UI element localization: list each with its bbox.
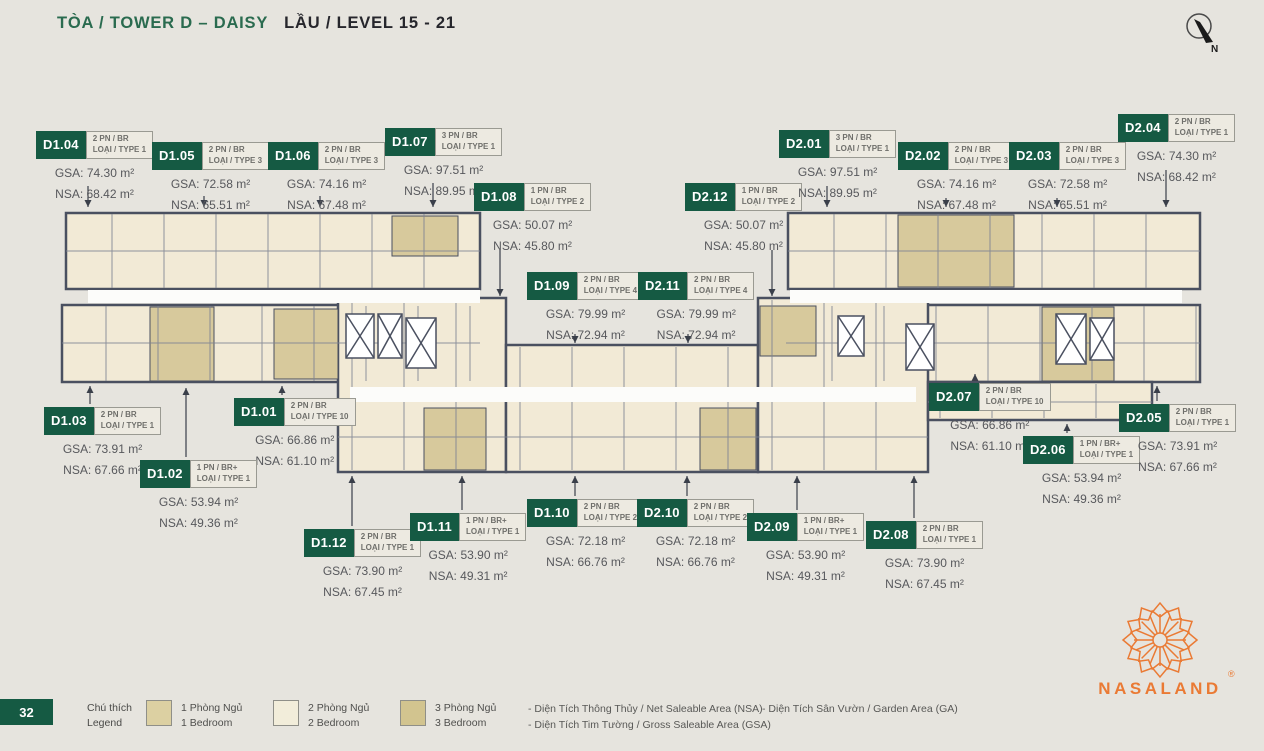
unit-type-label: 3 PN / BRLOẠI / TYPE 1 — [435, 128, 502, 156]
unit-id-label: D1.01 — [234, 398, 284, 426]
unit-card-head: D1.073 PN / BRLOẠI / TYPE 1 — [385, 128, 502, 156]
legend-item: 3 Phòng Ngủ3 Bedroom — [400, 700, 496, 731]
unit-areas: GSA: 73.91 m²NSA: 67.66 m² — [1138, 436, 1217, 479]
unit-card-d1-02: D1.021 PN / BR+LOẠI / TYPE 1GSA: 53.94 m… — [140, 460, 257, 535]
unit-gsa-value: GSA: 73.91 m² — [63, 439, 142, 461]
unit-card-head: D1.012 PN / BRLOẠI / TYPE 10 — [234, 398, 356, 426]
unit-gsa-value: GSA: 66.86 m² — [950, 415, 1029, 437]
unit-card-head: D2.112 PN / BRLOẠI / TYPE 4 — [638, 272, 754, 300]
unit-id-label: D2.07 — [929, 383, 979, 411]
unit-type-label: 2 PN / BRLOẠI / TYPE 3 — [948, 142, 1015, 170]
unit-bedroom-count: 1 PN / BR+ — [466, 516, 519, 527]
unit-areas: GSA: 79.99 m²NSA: 72.94 m² — [656, 304, 735, 347]
legend-color-swatch — [273, 700, 299, 726]
unit-type-label: 2 PN / BRLOẠI / TYPE 3 — [1059, 142, 1126, 170]
unit-bedroom-count: 2 PN / BR — [93, 134, 146, 145]
unit-card-head: D1.081 PN / BRLOẠI / TYPE 2 — [474, 183, 591, 211]
unit-areas: GSA: 53.90 m²NSA: 49.31 m² — [428, 545, 507, 588]
unit-id-label: D2.03 — [1009, 142, 1059, 170]
unit-nsa-value: NSA: 49.31 m² — [428, 566, 507, 588]
unit-type-label: 2 PN / BRLOẠI / TYPE 4 — [577, 272, 644, 300]
unit-gsa-value: GSA: 72.18 m² — [546, 531, 625, 553]
legend-note: - Diện Tích Thông Thủy / Net Saleable Ar… — [528, 701, 771, 717]
unit-type-label: 2 PN / BRLOẠI / TYPE 3 — [202, 142, 269, 170]
unit-gsa-value: GSA: 74.16 m² — [917, 174, 996, 196]
unit-areas: GSA: 72.58 m²NSA: 65.51 m² — [171, 174, 250, 217]
unit-gsa-value: GSA: 53.90 m² — [766, 545, 845, 567]
unit-gsa-value: GSA: 50.07 m² — [493, 215, 572, 237]
unit-id-label: D1.02 — [140, 460, 190, 488]
unit-card-d2-08: D2.082 PN / BRLOẠI / TYPE 1GSA: 73.90 m²… — [866, 521, 983, 596]
unit-gsa-value: GSA: 72.18 m² — [656, 531, 735, 553]
unit-nsa-value: NSA: 49.36 m² — [1042, 489, 1121, 511]
unit-areas: GSA: 97.51 m²NSA: 89.95 m² — [404, 160, 483, 203]
unit-type-number: LOẠI / TYPE 1 — [804, 527, 857, 538]
legend-label: 2 Phòng Ngủ2 Bedroom — [308, 700, 369, 731]
unit-bedroom-count: 1 PN / BR+ — [804, 516, 857, 527]
unit-bedroom-count: 2 PN / BR — [694, 502, 747, 513]
legend-title-en: Legend — [87, 716, 132, 731]
unit-gsa-value: GSA: 72.58 m² — [1028, 174, 1107, 196]
unit-type-label: 2 PN / BRLOẠI / TYPE 1 — [86, 131, 153, 159]
unit-bedroom-count: 2 PN / BR — [209, 145, 262, 156]
unit-id-label: D1.09 — [527, 272, 577, 300]
unit-bedroom-count: 3 PN / BR — [442, 131, 495, 142]
unit-gsa-value: GSA: 73.91 m² — [1138, 436, 1217, 458]
unit-card-d2-01: D2.013 PN / BRLOẠI / TYPE 1GSA: 97.51 m²… — [779, 130, 896, 205]
unit-nsa-value: NSA: 68.42 m² — [55, 184, 134, 206]
unit-bedroom-count: 2 PN / BR — [955, 145, 1008, 156]
unit-nsa-value: NSA: 67.66 m² — [63, 460, 142, 482]
unit-card-d2-02: D2.022 PN / BRLOẠI / TYPE 3GSA: 74.16 m²… — [898, 142, 1015, 217]
unit-id-label: D1.04 — [36, 131, 86, 159]
unit-bedroom-count: 2 PN / BR — [694, 275, 747, 286]
unit-type-number: LOẠI / TYPE 4 — [584, 286, 637, 297]
unit-card-head: D1.021 PN / BR+LOẠI / TYPE 1 — [140, 460, 257, 488]
unit-type-number: LOẠI / TYPE 2 — [584, 513, 637, 524]
unit-card-d1-11: D1.111 PN / BR+LOẠI / TYPE 1GSA: 53.90 m… — [410, 513, 526, 588]
unit-id-label: D1.10 — [527, 499, 577, 527]
legend-label: 3 Phòng Ngủ3 Bedroom — [435, 700, 496, 731]
unit-nsa-value: NSA: 68.42 m² — [1137, 167, 1216, 189]
unit-gsa-value: GSA: 66.86 m² — [255, 430, 334, 452]
unit-card-d1-09: D1.092 PN / BRLOẠI / TYPE 4GSA: 79.99 m²… — [527, 272, 644, 347]
unit-card-head: D2.102 PN / BRLOẠI / TYPE 2 — [637, 499, 754, 527]
unit-id-label: D2.12 — [685, 183, 735, 211]
unit-type-number: LOẠI / TYPE 1 — [466, 527, 519, 538]
unit-type-label: 1 PN / BR+LOẠI / TYPE 1 — [459, 513, 526, 541]
unit-gsa-value: GSA: 73.90 m² — [323, 561, 402, 583]
unit-card-head: D2.072 PN / BRLOẠI / TYPE 10 — [929, 383, 1051, 411]
unit-card-head: D2.042 PN / BRLOẠI / TYPE 1 — [1118, 114, 1235, 142]
unit-nsa-value: NSA: 45.80 m² — [493, 236, 572, 258]
unit-id-label: D2.05 — [1119, 404, 1169, 432]
unit-card-head: D1.052 PN / BRLOẠI / TYPE 3 — [152, 142, 269, 170]
unit-bedroom-count: 2 PN / BR — [291, 401, 349, 412]
unit-nsa-value: NSA: 67.48 m² — [917, 195, 996, 217]
unit-type-number: LOẠI / TYPE 1 — [101, 421, 154, 432]
unit-id-label: D1.11 — [410, 513, 459, 541]
unit-type-label: 2 PN / BRLOẠI / TYPE 10 — [979, 383, 1051, 411]
unit-gsa-value: GSA: 50.07 m² — [704, 215, 783, 237]
unit-id-label: D2.10 — [637, 499, 687, 527]
unit-type-label: 2 PN / BRLOẠI / TYPE 10 — [284, 398, 356, 426]
unit-areas: GSA: 72.18 m²NSA: 66.76 m² — [656, 531, 735, 574]
unit-areas: GSA: 79.99 m²NSA: 72.94 m² — [546, 304, 625, 347]
unit-id-label: D2.01 — [779, 130, 829, 158]
legend-note: - Diện Tích Tim Tường / Gross Saleable A… — [528, 717, 771, 733]
unit-gsa-value: GSA: 53.90 m² — [428, 545, 507, 567]
unit-id-label: D1.12 — [304, 529, 354, 557]
unit-type-label: 2 PN / BRLOẠI / TYPE 1 — [1169, 404, 1236, 432]
unit-card-d2-05: D2.052 PN / BRLOẠI / TYPE 1GSA: 73.91 m²… — [1119, 404, 1236, 479]
legend-item: 2 Phòng Ngủ2 Bedroom — [273, 700, 369, 731]
unit-type-number: LOẠI / TYPE 1 — [361, 543, 414, 554]
unit-type-label: 2 PN / BRLOẠI / TYPE 3 — [318, 142, 385, 170]
unit-gsa-value: GSA: 97.51 m² — [798, 162, 877, 184]
unit-id-label: D2.11 — [638, 272, 687, 300]
unit-bedroom-count: 3 PN / BR — [836, 133, 889, 144]
unit-type-number: LOẠI / TYPE 1 — [1176, 418, 1229, 429]
unit-card-d2-10: D2.102 PN / BRLOẠI / TYPE 2GSA: 72.18 m²… — [637, 499, 754, 574]
unit-type-number: LOẠI / TYPE 3 — [325, 156, 378, 167]
unit-bedroom-count: 2 PN / BR — [1066, 145, 1119, 156]
unit-areas: GSA: 74.30 m²NSA: 68.42 m² — [1137, 146, 1216, 189]
unit-bedroom-count: 2 PN / BR — [1176, 407, 1229, 418]
unit-type-label: 2 PN / BRLOẠI / TYPE 4 — [687, 272, 754, 300]
unit-gsa-value: GSA: 74.30 m² — [55, 163, 134, 185]
unit-gsa-value: GSA: 53.94 m² — [159, 492, 238, 514]
unit-nsa-value: NSA: 49.36 m² — [159, 513, 238, 535]
unit-gsa-value: GSA: 74.30 m² — [1137, 146, 1216, 168]
unit-type-number: LOẠI / TYPE 1 — [923, 535, 976, 546]
unit-areas: GSA: 66.86 m²NSA: 61.10 m² — [255, 430, 334, 473]
unit-card-head: D1.122 PN / BRLOẠI / TYPE 1 — [304, 529, 421, 557]
unit-areas: GSA: 74.30 m²NSA: 68.42 m² — [55, 163, 134, 206]
unit-bedroom-count: 2 PN / BR — [986, 386, 1044, 397]
unit-nsa-value: NSA: 45.80 m² — [704, 236, 783, 258]
legend-item: 1 Phòng Ngủ1 Bedroom — [146, 700, 242, 731]
unit-nsa-value: NSA: 89.95 m² — [798, 183, 877, 205]
unit-areas: GSA: 73.91 m²NSA: 67.66 m² — [63, 439, 142, 482]
unit-areas: GSA: 53.94 m²NSA: 49.36 m² — [1042, 468, 1121, 511]
unit-card-head: D1.092 PN / BRLOẠI / TYPE 4 — [527, 272, 644, 300]
unit-type-label: 2 PN / BRLOẠI / TYPE 1 — [1168, 114, 1235, 142]
page-number-badge: 32 — [0, 699, 53, 725]
unit-type-label: 3 PN / BRLOẠI / TYPE 1 — [829, 130, 896, 158]
unit-card-head: D1.062 PN / BRLOẠI / TYPE 3 — [268, 142, 385, 170]
unit-nsa-value: NSA: 66.76 m² — [546, 552, 625, 574]
unit-type-label: 2 PN / BRLOẠI / TYPE 2 — [687, 499, 754, 527]
unit-card-head: D2.082 PN / BRLOẠI / TYPE 1 — [866, 521, 983, 549]
unit-nsa-value: NSA: 67.66 m² — [1138, 457, 1217, 479]
unit-nsa-value: NSA: 67.48 m² — [287, 195, 366, 217]
unit-id-label: D1.08 — [474, 183, 524, 211]
unit-id-label: D2.02 — [898, 142, 948, 170]
unit-id-label: D2.06 — [1023, 436, 1073, 464]
unit-card-d2-11: D2.112 PN / BRLOẠI / TYPE 4GSA: 79.99 m²… — [638, 272, 754, 347]
unit-areas: GSA: 72.58 m²NSA: 65.51 m² — [1028, 174, 1107, 217]
unit-card-head: D2.022 PN / BRLOẠI / TYPE 3 — [898, 142, 1015, 170]
legend-notes-col1: - Diện Tích Thông Thủy / Net Saleable Ar… — [528, 701, 771, 734]
unit-type-number: LOẠI / TYPE 10 — [291, 412, 349, 423]
unit-bedroom-count: 2 PN / BR — [1175, 117, 1228, 128]
unit-gsa-value: GSA: 79.99 m² — [546, 304, 625, 326]
unit-type-number: LOẠI / TYPE 1 — [836, 144, 889, 155]
unit-gsa-value: GSA: 53.94 m² — [1042, 468, 1121, 490]
unit-card-d2-04: D2.042 PN / BRLOẠI / TYPE 1GSA: 74.30 m²… — [1118, 114, 1235, 189]
unit-card-head: D2.052 PN / BRLOẠI / TYPE 1 — [1119, 404, 1236, 432]
unit-type-number: LOẠI / TYPE 1 — [93, 145, 146, 156]
unit-areas: GSA: 72.18 m²NSA: 66.76 m² — [546, 531, 625, 574]
unit-areas: GSA: 74.16 m²NSA: 67.48 m² — [917, 174, 996, 217]
unit-type-label: 2 PN / BRLOẠI / TYPE 2 — [577, 499, 644, 527]
unit-bedroom-count: 1 PN / BR+ — [197, 463, 250, 474]
unit-areas: GSA: 53.90 m²NSA: 49.31 m² — [766, 545, 845, 588]
unit-card-head: D1.042 PN / BRLOẠI / TYPE 1 — [36, 131, 153, 159]
unit-areas: GSA: 53.94 m²NSA: 49.36 m² — [159, 492, 238, 535]
unit-areas: GSA: 50.07 m²NSA: 45.80 m² — [493, 215, 572, 258]
unit-gsa-value: GSA: 73.90 m² — [885, 553, 964, 575]
unit-card-head: D1.111 PN / BR+LOẠI / TYPE 1 — [410, 513, 526, 541]
unit-areas: GSA: 73.90 m²NSA: 67.45 m² — [323, 561, 402, 604]
unit-card-head: D2.032 PN / BRLOẠI / TYPE 3 — [1009, 142, 1126, 170]
unit-nsa-value: NSA: 89.95 m² — [404, 181, 483, 203]
unit-type-number: LOẠI / TYPE 3 — [955, 156, 1008, 167]
unit-card-head: D2.091 PN / BR+LOẠI / TYPE 1 — [747, 513, 864, 541]
unit-areas: GSA: 50.07 m²NSA: 45.80 m² — [704, 215, 783, 258]
unit-id-label: D1.05 — [152, 142, 202, 170]
unit-areas: GSA: 73.90 m²NSA: 67.45 m² — [885, 553, 964, 596]
unit-areas: GSA: 66.86 m²NSA: 61.10 m² — [950, 415, 1029, 458]
unit-bedroom-count: 2 PN / BR — [361, 532, 414, 543]
unit-card-head: D2.013 PN / BRLOẠI / TYPE 1 — [779, 130, 896, 158]
unit-card-d1-04: D1.042 PN / BRLOẠI / TYPE 1GSA: 74.30 m²… — [36, 131, 153, 206]
unit-bedroom-count: 2 PN / BR — [101, 410, 154, 421]
unit-type-label: 1 PN / BRLOẠI / TYPE 2 — [524, 183, 591, 211]
unit-type-number: LOẠI / TYPE 10 — [986, 397, 1044, 408]
unit-bedroom-count: 2 PN / BR — [584, 502, 637, 513]
legend-items: 1 Phòng Ngủ1 Bedroom2 Phòng Ngủ2 Bedroom… — [146, 700, 536, 730]
legend-color-swatch — [400, 700, 426, 726]
unit-nsa-value: NSA: 61.10 m² — [950, 436, 1029, 458]
unit-bedroom-count: 2 PN / BR — [584, 275, 637, 286]
unit-nsa-value: NSA: 72.94 m² — [546, 325, 625, 347]
unit-card-d2-03: D2.032 PN / BRLOẠI / TYPE 3GSA: 72.58 m²… — [1009, 142, 1126, 217]
unit-gsa-value: GSA: 97.51 m² — [404, 160, 483, 182]
unit-nsa-value: NSA: 67.45 m² — [885, 574, 964, 596]
unit-card-d1-05: D1.052 PN / BRLOẠI / TYPE 3GSA: 72.58 m²… — [152, 142, 269, 217]
unit-nsa-value: NSA: 49.31 m² — [766, 566, 845, 588]
unit-id-label: D2.08 — [866, 521, 916, 549]
unit-bedroom-count: 2 PN / BR — [325, 145, 378, 156]
unit-id-label: D2.09 — [747, 513, 797, 541]
unit-id-label: D1.07 — [385, 128, 435, 156]
unit-type-number: LOẠI / TYPE 1 — [1175, 128, 1228, 139]
legend-label: 1 Phòng Ngủ1 Bedroom — [181, 700, 242, 731]
unit-bedroom-count: 2 PN / BR — [923, 524, 976, 535]
unit-card-d1-12: D1.122 PN / BRLOẠI / TYPE 1GSA: 73.90 m²… — [304, 529, 421, 604]
unit-card-head: D1.102 PN / BRLOẠI / TYPE 2 — [527, 499, 644, 527]
unit-type-number: LOẠI / TYPE 2 — [694, 513, 747, 524]
unit-bedroom-count: 1 PN / BR — [531, 186, 584, 197]
unit-card-d1-08: D1.081 PN / BRLOẠI / TYPE 2GSA: 50.07 m²… — [474, 183, 591, 258]
legend-notes-col2: - Diện Tích Sân Vườn / Garden Area (GA) — [762, 701, 958, 717]
unit-type-label: 1 PN / BR+LOẠI / TYPE 1 — [797, 513, 864, 541]
unit-nsa-value: NSA: 67.45 m² — [323, 582, 402, 604]
unit-id-label: D1.03 — [44, 407, 94, 435]
unit-type-number: LOẠI / TYPE 4 — [694, 286, 747, 297]
unit-nsa-value: NSA: 72.94 m² — [656, 325, 735, 347]
unit-card-d2-09: D2.091 PN / BR+LOẠI / TYPE 1GSA: 53.90 m… — [747, 513, 864, 588]
unit-nsa-value: NSA: 65.51 m² — [171, 195, 250, 217]
unit-id-label: D2.04 — [1118, 114, 1168, 142]
unit-nsa-value: NSA: 61.10 m² — [255, 451, 334, 473]
legend-note: - Diện Tích Sân Vườn / Garden Area (GA) — [762, 701, 958, 717]
unit-gsa-value: GSA: 72.58 m² — [171, 174, 250, 196]
unit-card-d1-06: D1.062 PN / BRLOẠI / TYPE 3GSA: 74.16 m²… — [268, 142, 385, 217]
unit-gsa-value: GSA: 74.16 m² — [287, 174, 366, 196]
unit-type-number: LOẠI / TYPE 3 — [1066, 156, 1119, 167]
unit-type-number: LOẠI / TYPE 3 — [209, 156, 262, 167]
unit-type-label: 1 PN / BR+LOẠI / TYPE 1 — [190, 460, 257, 488]
unit-labels-layer: D1.042 PN / BRLOẠI / TYPE 1GSA: 74.30 m²… — [0, 0, 1264, 751]
unit-type-number: LOẠI / TYPE 1 — [197, 474, 250, 485]
unit-type-label: 2 PN / BRLOẠI / TYPE 1 — [916, 521, 983, 549]
unit-gsa-value: GSA: 79.99 m² — [656, 304, 735, 326]
unit-areas: GSA: 97.51 m²NSA: 89.95 m² — [798, 162, 877, 205]
unit-type-number: LOẠI / TYPE 2 — [531, 197, 584, 208]
legend-color-swatch — [146, 700, 172, 726]
legend-title: Chú thích Legend — [87, 701, 132, 731]
unit-type-label: 2 PN / BRLOẠI / TYPE 1 — [94, 407, 161, 435]
unit-card-d1-10: D1.102 PN / BRLOẠI / TYPE 2GSA: 72.18 m²… — [527, 499, 644, 574]
floor-plan-page: TÒA / TOWER D – DAISYLẦU / LEVEL 15 - 21 — [0, 0, 1264, 751]
unit-id-label: D1.06 — [268, 142, 318, 170]
unit-type-number: LOẠI / TYPE 1 — [442, 142, 495, 153]
unit-nsa-value: NSA: 66.76 m² — [656, 552, 735, 574]
unit-areas: GSA: 74.16 m²NSA: 67.48 m² — [287, 174, 366, 217]
legend-title-vi: Chú thích — [87, 701, 132, 716]
unit-nsa-value: NSA: 65.51 m² — [1028, 195, 1107, 217]
unit-card-head: D1.032 PN / BRLOẠI / TYPE 1 — [44, 407, 161, 435]
